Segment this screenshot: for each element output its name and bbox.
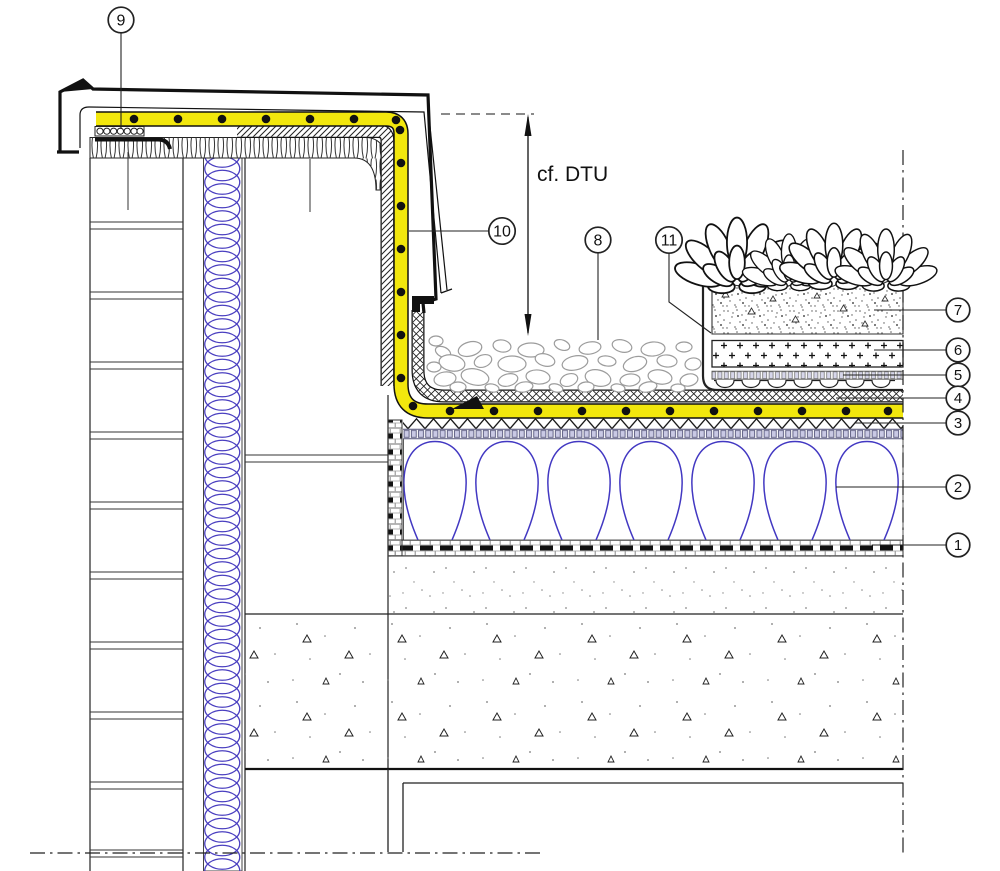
roof-insulation-layer xyxy=(404,439,904,541)
callout-7-label: 7 xyxy=(954,302,962,319)
dimension-note: cf. DTU xyxy=(537,163,608,186)
callout-8-label: 8 xyxy=(594,233,603,250)
green-roof-system xyxy=(703,278,903,390)
callout-5-label: 5 xyxy=(954,367,962,384)
callout-6-label: 6 xyxy=(954,342,962,359)
drainage-dimple-board xyxy=(714,381,895,388)
callout-11-label: 11 xyxy=(661,233,678,250)
callout-2-label: 2 xyxy=(954,479,962,496)
arrowhead-down-icon xyxy=(525,314,532,336)
section-drawing: cf. DTU 9 10 8 11 7 xyxy=(0,0,1000,871)
interior-lines xyxy=(388,769,903,852)
gravel-pebbles xyxy=(427,336,702,394)
drainage-granular-layer xyxy=(712,341,903,368)
wall-insulation-coil xyxy=(204,158,243,871)
callout-9-label: 9 xyxy=(117,13,126,30)
arrowhead-up-icon xyxy=(525,114,532,136)
insulation-facer-layers xyxy=(403,418,903,439)
callout-3-label: 3 xyxy=(954,415,962,432)
vegetation xyxy=(672,218,939,294)
facade-wall xyxy=(90,158,183,871)
vapour-barrier-upstand xyxy=(388,420,402,556)
structural-slab-and-screed xyxy=(245,556,903,769)
callout-8: 8 xyxy=(585,227,611,340)
screed-layer xyxy=(388,556,903,614)
callout-9: 9 xyxy=(108,7,134,129)
facer-strip-layer xyxy=(403,429,903,439)
callout-10: 10 xyxy=(409,218,515,244)
block-joints xyxy=(90,222,183,857)
callout-1-label: 1 xyxy=(954,537,962,554)
membrane-termination xyxy=(95,127,170,211)
callout-10-label: 10 xyxy=(493,224,511,241)
dimension-cf-dtu: cf. DTU xyxy=(441,114,608,336)
callout-4-label: 4 xyxy=(954,390,962,407)
technical-drawing-canvas: cf. DTU 9 10 8 11 7 xyxy=(0,0,1000,871)
membrane-reinforcement-strip xyxy=(237,131,388,386)
inner-wall-joint xyxy=(245,455,388,462)
bonding-zigzag-layer xyxy=(403,418,903,429)
concrete-slab xyxy=(245,614,903,769)
